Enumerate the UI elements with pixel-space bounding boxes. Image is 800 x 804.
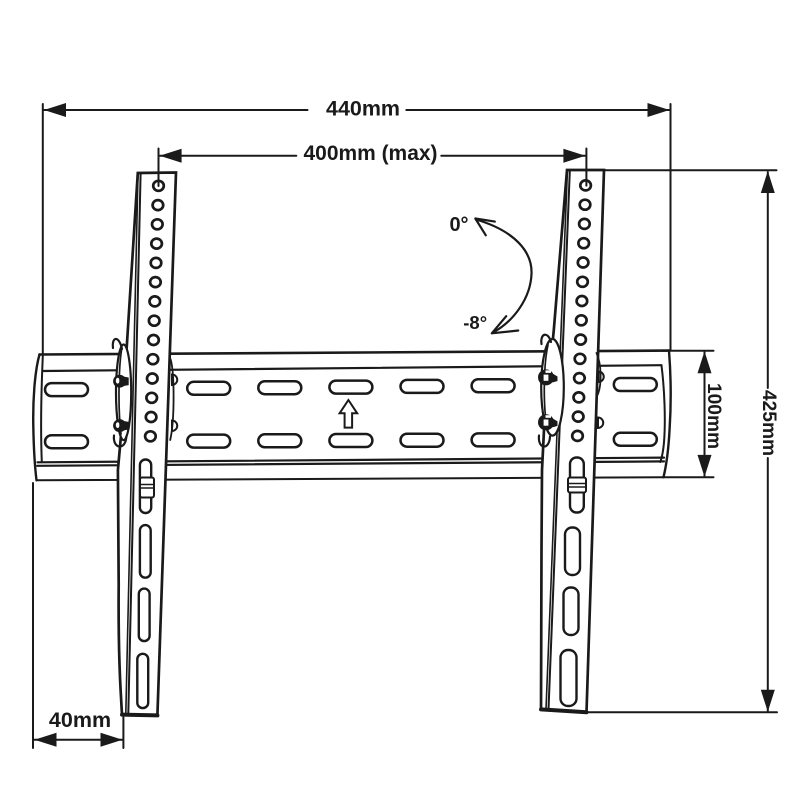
svg-text:425mm: 425mm bbox=[758, 390, 780, 456]
svg-text:40mm: 40mm bbox=[49, 708, 111, 732]
svg-text:440mm: 440mm bbox=[326, 96, 400, 120]
svg-text:0°: 0° bbox=[449, 214, 468, 236]
svg-text:-8°: -8° bbox=[463, 312, 487, 333]
svg-text:100mm: 100mm bbox=[703, 383, 725, 449]
svg-text:400mm (max): 400mm (max) bbox=[304, 141, 438, 165]
